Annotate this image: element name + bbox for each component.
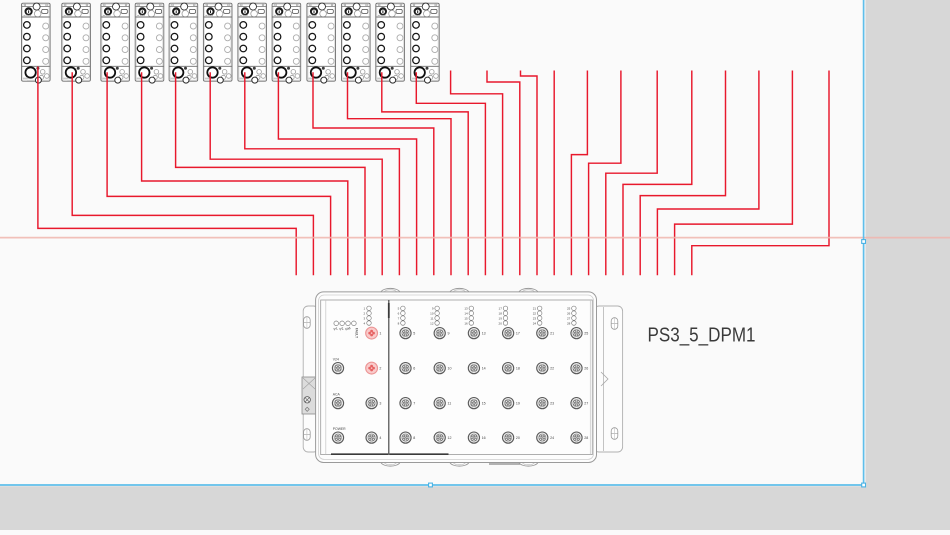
svg-text:10: 10 [430, 312, 434, 316]
svg-text:4: 4 [379, 436, 381, 440]
svg-text:19: 19 [499, 316, 503, 320]
svg-text:12: 12 [430, 321, 434, 325]
svg-text:18: 18 [499, 312, 503, 316]
svg-text:27: 27 [584, 402, 588, 406]
svg-text:9: 9 [448, 332, 450, 336]
svg-text:5: 5 [413, 332, 415, 336]
svg-text:22: 22 [550, 367, 554, 371]
svg-text:25: 25 [584, 332, 588, 336]
svg-text:7: 7 [413, 402, 415, 406]
svg-text:24: 24 [533, 321, 537, 325]
svg-text:2: 2 [379, 367, 381, 371]
svg-text:16: 16 [482, 436, 486, 440]
svg-text:FAULT: FAULT [354, 328, 358, 338]
svg-text:20: 20 [499, 321, 503, 325]
svg-text:26: 26 [584, 367, 588, 371]
svg-text:13: 13 [464, 307, 468, 311]
svg-text:11: 11 [448, 402, 452, 406]
svg-text:18: 18 [516, 367, 520, 371]
svg-text:1: 1 [379, 332, 381, 336]
svg-text:16: 16 [464, 321, 468, 325]
svg-text:27: 27 [567, 316, 571, 320]
svg-text:V24: V24 [333, 358, 339, 362]
svg-text:19: 19 [516, 402, 520, 406]
svg-text:10: 10 [448, 367, 452, 371]
svg-text:8: 8 [413, 436, 415, 440]
svg-text:26: 26 [567, 312, 571, 316]
svg-text:23: 23 [533, 316, 537, 320]
svg-text:28: 28 [584, 436, 588, 440]
svg-text:22: 22 [533, 312, 537, 316]
svg-text:PS3_5_DPM1: PS3_5_DPM1 [648, 324, 756, 347]
svg-text:14: 14 [482, 367, 486, 371]
svg-text:POWER: POWER [333, 427, 346, 431]
svg-text:3: 3 [379, 402, 381, 406]
svg-text:17: 17 [499, 307, 503, 311]
svg-text:13: 13 [482, 332, 486, 336]
svg-text:6: 6 [413, 367, 415, 371]
svg-text:12: 12 [448, 436, 452, 440]
svg-text:15: 15 [464, 316, 468, 320]
svg-text:14: 14 [464, 312, 468, 316]
svg-text:25: 25 [567, 307, 571, 311]
svg-text:21: 21 [533, 307, 537, 311]
svg-text:28: 28 [567, 321, 571, 325]
svg-text:15: 15 [482, 402, 486, 406]
svg-text:17: 17 [516, 332, 520, 336]
svg-text:21: 21 [550, 332, 554, 336]
svg-text:20: 20 [516, 436, 520, 440]
svg-text:ACA: ACA [333, 393, 341, 397]
svg-text:11: 11 [430, 316, 433, 320]
svg-text:23: 23 [550, 402, 554, 406]
svg-text:24: 24 [550, 436, 554, 440]
